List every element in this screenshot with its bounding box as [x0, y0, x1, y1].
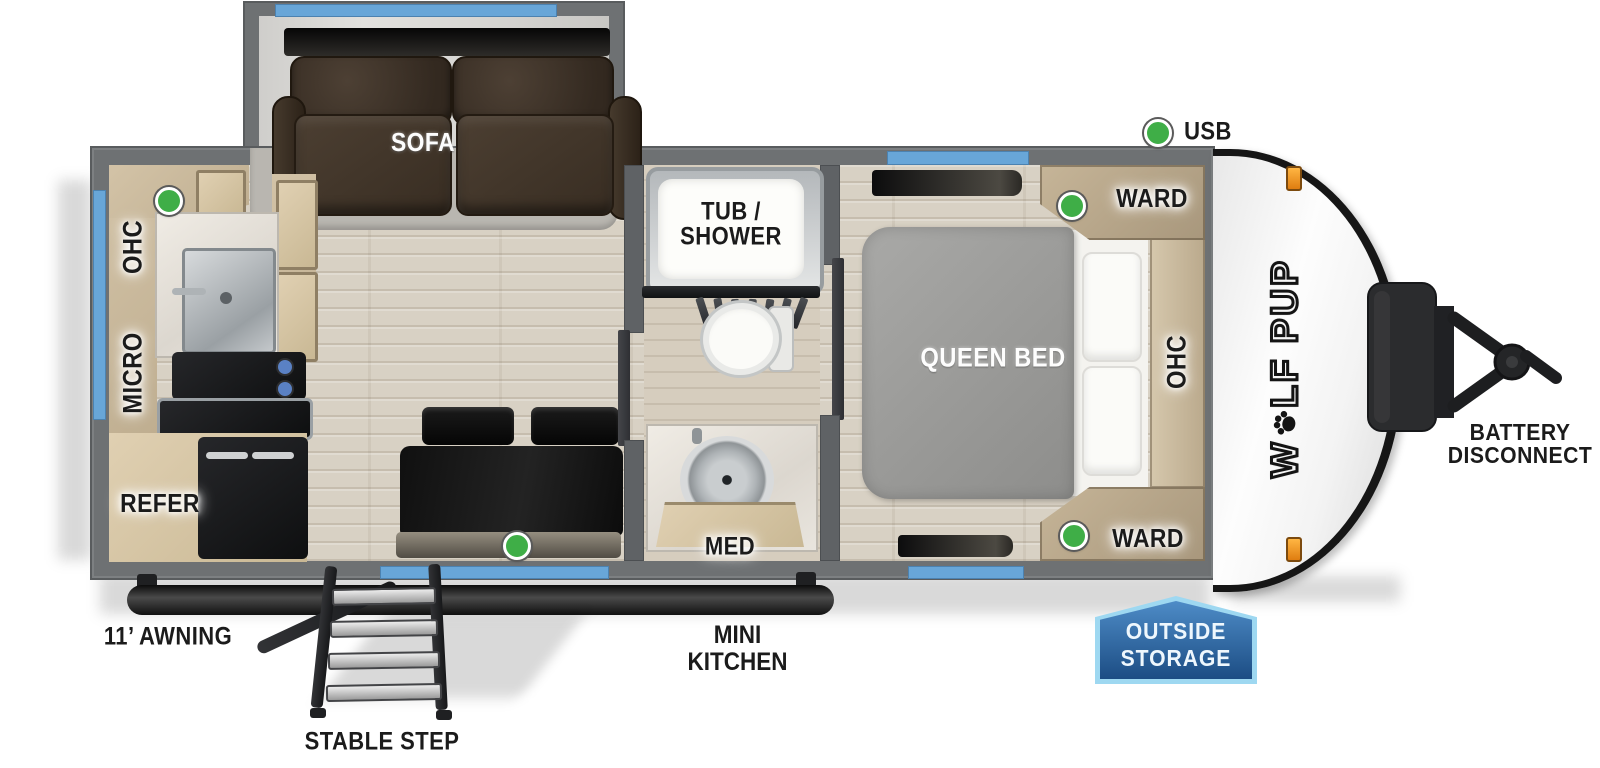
clearance-light-icon — [1286, 166, 1302, 191]
ward-front-label: WARD — [1116, 185, 1188, 211]
usb-indicator-icon — [1058, 192, 1086, 220]
mini-kitchen-line1: MINI — [663, 622, 812, 649]
usb-legend-icon — [1144, 119, 1172, 147]
logo-letters-lfpup: LF PUP — [1264, 258, 1306, 408]
awning-tube — [127, 585, 834, 615]
bathroom-wall — [820, 415, 840, 561]
shower-door-track — [642, 286, 820, 298]
sofa-label: SOFA — [391, 129, 455, 155]
vanity-faucet — [692, 428, 702, 444]
outside-storage-line1: OUTSIDE — [1101, 618, 1250, 645]
sofa-back-shelf — [284, 28, 610, 56]
sink-faucet — [172, 288, 206, 295]
wolf-pup-logo: W LF PUP — [1264, 258, 1306, 478]
battery-disconnect-label: BATTERY DISCONNECT — [1433, 421, 1600, 467]
mini-kitchen-line2: KITCHEN — [663, 649, 812, 676]
ohc-kitchen-label: OHC — [120, 220, 147, 274]
outside-storage-line2: STORAGE — [1101, 645, 1250, 672]
dinette-chair — [422, 407, 514, 445]
left-wall-window — [93, 190, 106, 420]
battery-label-line2: DISCONNECT — [1433, 444, 1600, 467]
tub-shower-label-line1: TUB / — [701, 200, 761, 225]
bathroom-wall — [624, 440, 644, 561]
bathroom-door — [618, 330, 630, 446]
bedroom-window-bottom — [908, 566, 1024, 579]
stable-step-ladder — [258, 558, 473, 723]
dinette-table — [400, 446, 623, 536]
ladder-foot — [310, 708, 326, 718]
refrigerator-handle — [252, 452, 294, 459]
sink-drain — [220, 292, 232, 304]
bed-pillow — [1082, 366, 1142, 476]
paw-print-icon — [1270, 409, 1300, 439]
bedroom-foot-shelf — [898, 535, 1013, 557]
usb-indicator-icon — [1060, 522, 1088, 550]
ladder-step — [328, 651, 440, 670]
kitchen-tall-cabinet-door — [276, 272, 318, 362]
awning-label: 11’ AWNING — [104, 625, 232, 650]
refrigerator-handle — [206, 452, 248, 459]
usb-legend-label: USB — [1184, 120, 1232, 145]
rear-shadow — [58, 180, 92, 560]
bedroom-overhead-shelf — [872, 170, 1022, 196]
ward-rear-label: WARD — [1112, 525, 1184, 551]
sofa-seat-cushion — [456, 114, 614, 216]
usb-indicator-icon — [503, 532, 531, 560]
kitchen-tall-cabinet-door — [276, 180, 318, 270]
kitchen-ohc-door — [196, 170, 246, 218]
tub-shower-label-line2: SHOWER — [680, 225, 782, 250]
ladder-step — [330, 619, 438, 638]
ladder-step — [326, 683, 442, 702]
dinette-chair — [531, 407, 619, 445]
refer-label: REFER — [120, 490, 200, 516]
bathroom-wall — [624, 165, 644, 333]
mini-kitchen-label: MINI KITCHEN — [663, 622, 812, 676]
outside-storage-text: OUTSIDE STORAGE — [1101, 618, 1250, 672]
micro-label: MICRO — [120, 332, 147, 413]
stove-knob — [276, 380, 294, 398]
ladder-foot — [436, 710, 452, 720]
stable-step-label: STABLE STEP — [305, 730, 460, 755]
bed-pillow — [1082, 252, 1142, 362]
bedroom-pocket-door — [832, 258, 844, 420]
stove-knob — [276, 358, 294, 376]
ohc-bedroom-label: OHC — [1164, 335, 1191, 389]
med-label: MED — [705, 535, 755, 560]
clearance-light-icon — [1286, 537, 1302, 562]
slideout-window — [275, 4, 557, 17]
battery-label-line1: BATTERY — [1433, 421, 1600, 444]
queen-bed-label: QUEEN BED — [920, 345, 1065, 372]
floorplan-canvas: SOFA OHC MICRO REFER TUB / SHOWER MED — [0, 0, 1600, 768]
logo-letter-w: W — [1264, 440, 1306, 478]
bedroom-window-top — [887, 151, 1029, 165]
usb-indicator-icon — [155, 187, 183, 215]
ladder-step — [332, 587, 436, 606]
